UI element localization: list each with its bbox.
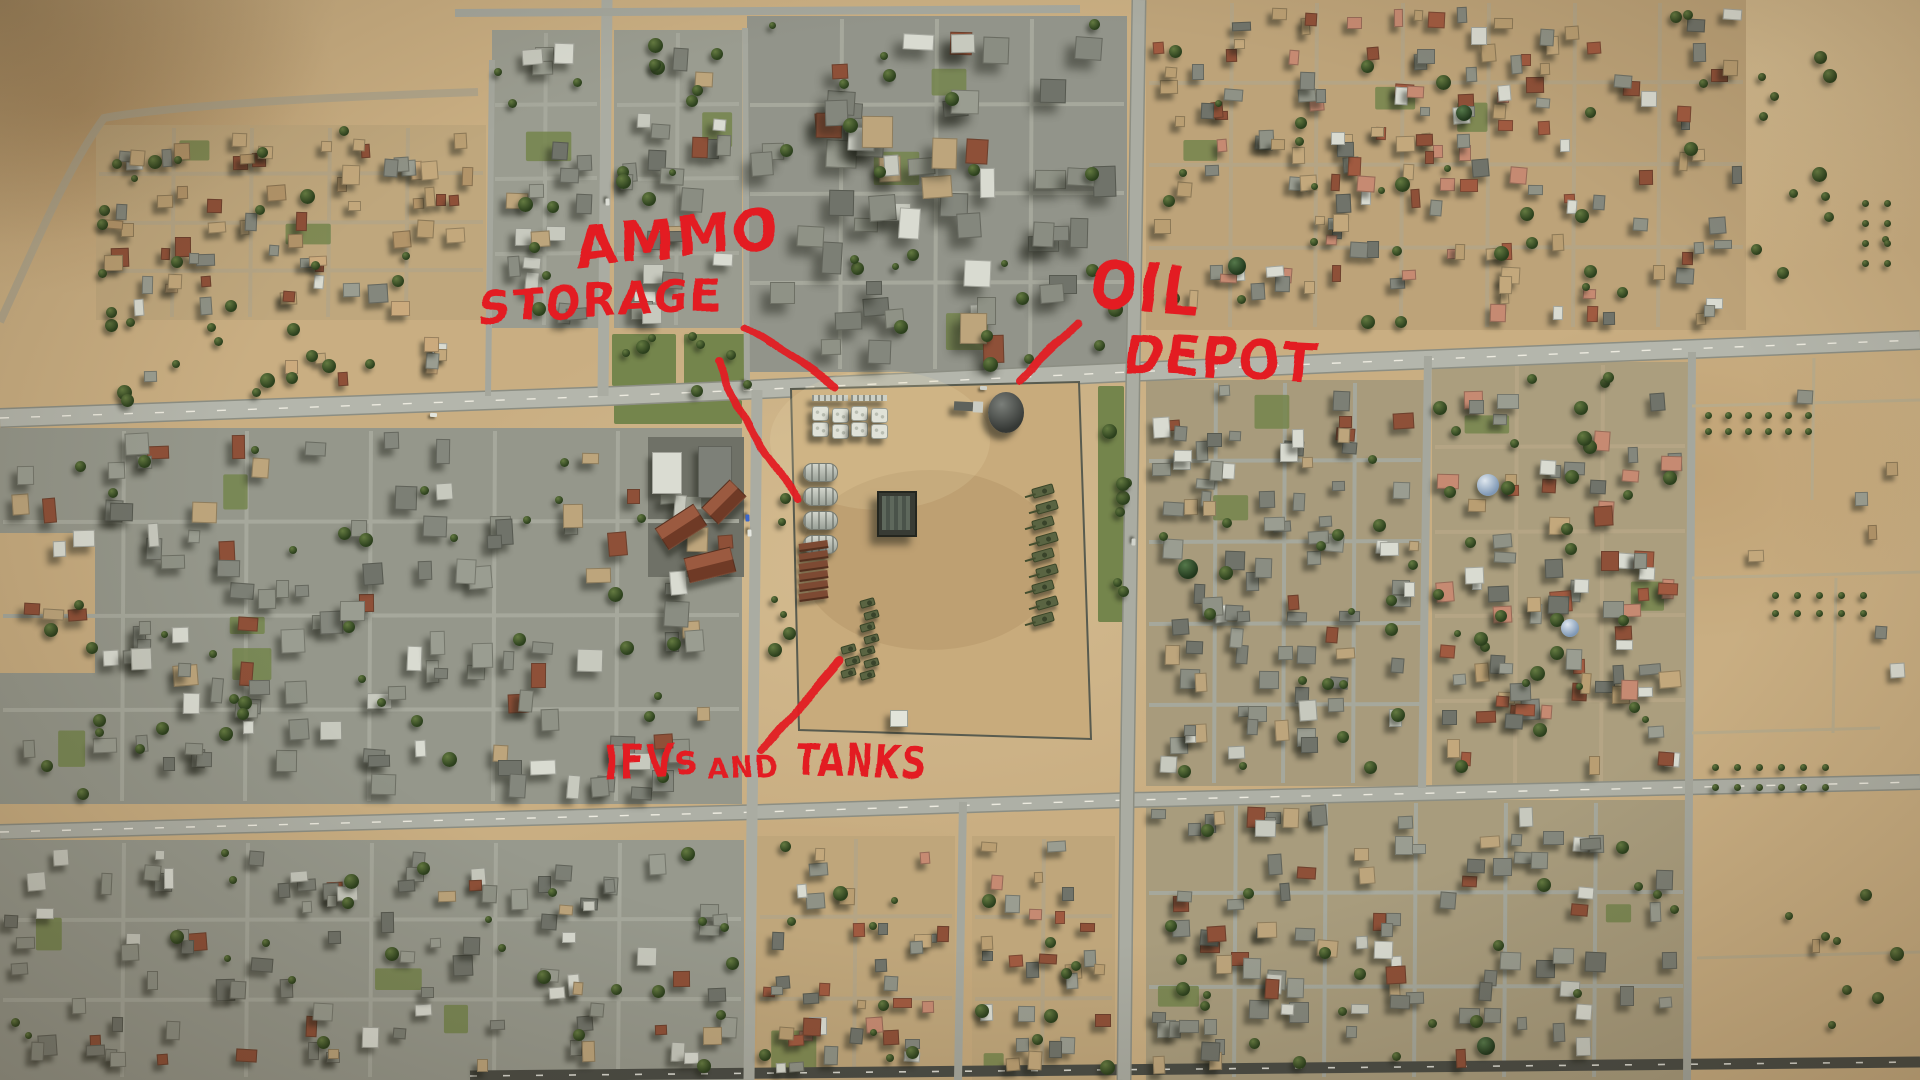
annotation-line-storage-compound-line	[718, 361, 799, 499]
annotation-word-ifvs-and-tanks: AND	[707, 748, 779, 789]
annotation-word-ifvs-and-tanks: TANKS	[794, 736, 930, 788]
annotation-lines-svg	[0, 0, 1920, 1080]
annotation-word-ifvs-and-tanks: IFVs	[604, 731, 700, 790]
annotation-pointer-lines	[718, 323, 1080, 750]
annotation-line-oil-depot-line	[1019, 323, 1080, 382]
annotated-aerial-map: AMMOSTORAGEOILDEPOTIFVsANDTANKS	[0, 0, 1920, 1080]
annotation-word-oil-depot: OIL	[1085, 246, 1205, 332]
annotation-layer: AMMOSTORAGEOILDEPOTIFVsANDTANKS	[0, 0, 1920, 1080]
annotation-word-oil-depot: DEPOT	[1121, 322, 1321, 395]
annotation-line-ammo-storage-line	[743, 326, 835, 387]
